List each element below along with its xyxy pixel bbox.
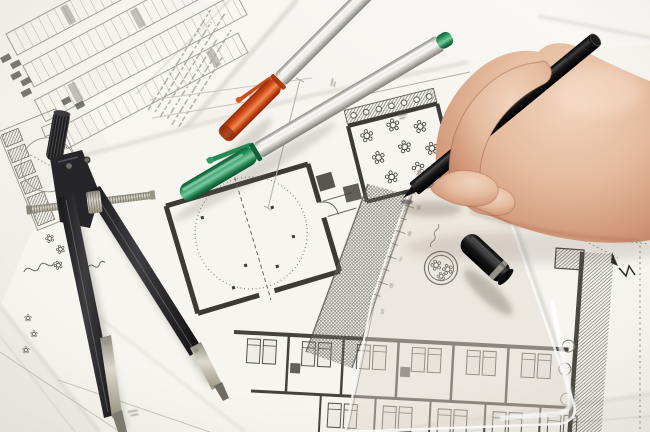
desk-photo: 9 8 7 6 5 [0, 0, 650, 432]
photo-stage: 9 8 7 6 5 [0, 0, 650, 432]
vignette [0, 0, 650, 432]
